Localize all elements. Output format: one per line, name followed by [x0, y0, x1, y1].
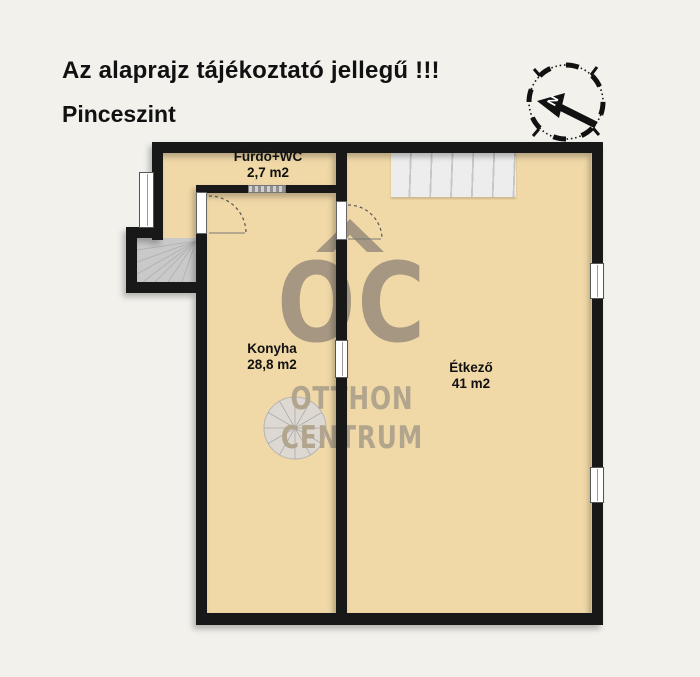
- room-name-kitchen: Konyha: [202, 341, 342, 357]
- room-name-bathroom: Fürdő+WC: [198, 149, 338, 165]
- room-name-dining: Étkező: [401, 360, 541, 376]
- door-swing-arc-left: [209, 196, 246, 233]
- room-label-bathroom: Fürdő+WC 2,7 m2: [198, 149, 338, 181]
- room-label-dining: Étkező 41 m2: [401, 360, 541, 392]
- room-label-kitchen: Konyha 28,8 m2: [202, 341, 342, 373]
- room-area-dining: 41 m2: [401, 376, 541, 392]
- room-area-kitchen: 28,8 m2: [202, 357, 342, 373]
- door-swing-arc-middle: [348, 205, 382, 239]
- compass-icon: N: [518, 56, 614, 148]
- room-area-bathroom: 2,7 m2: [198, 165, 338, 181]
- north-arrow-icon: N: [537, 93, 596, 125]
